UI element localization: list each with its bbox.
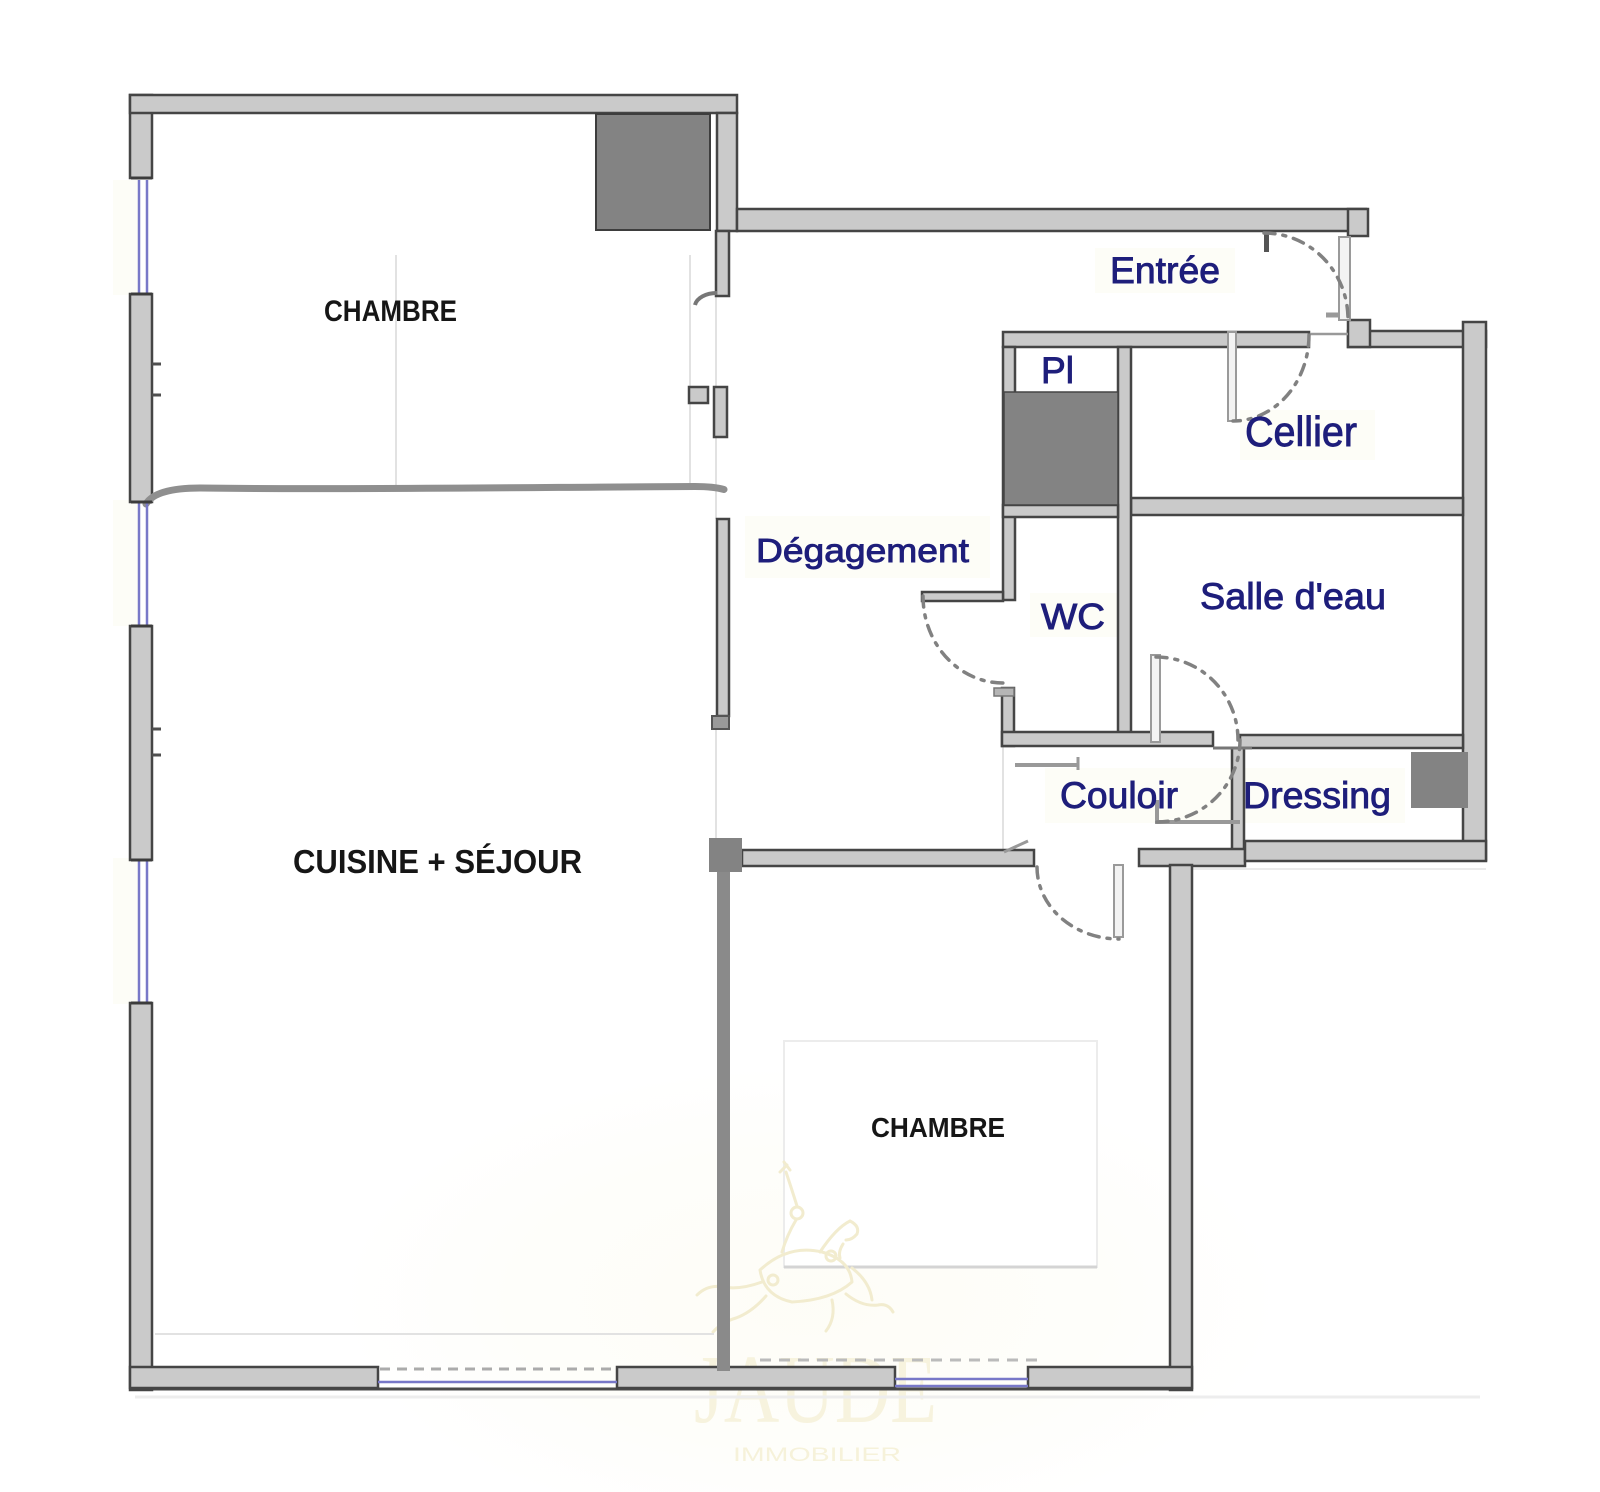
svg-text:Dégagement: Dégagement bbox=[756, 532, 969, 569]
svg-text:CUISINE + SÉJOUR: CUISINE + SÉJOUR bbox=[293, 843, 582, 880]
svg-text:Salle d'eau: Salle d'eau bbox=[1200, 576, 1386, 617]
svg-text:IMMOBILIER: IMMOBILIER bbox=[733, 1445, 901, 1466]
svg-text:CHAMBRE: CHAMBRE bbox=[324, 295, 457, 328]
svg-text:CHAMBRE: CHAMBRE bbox=[871, 1112, 1005, 1143]
svg-text:Entrée: Entrée bbox=[1110, 250, 1220, 291]
svg-text:Couloir: Couloir bbox=[1060, 775, 1178, 816]
svg-text:Dressing: Dressing bbox=[1243, 775, 1391, 816]
svg-text:WC: WC bbox=[1041, 596, 1105, 637]
svg-text:Pl: Pl bbox=[1041, 350, 1074, 391]
svg-text:Cellier: Cellier bbox=[1245, 408, 1357, 455]
